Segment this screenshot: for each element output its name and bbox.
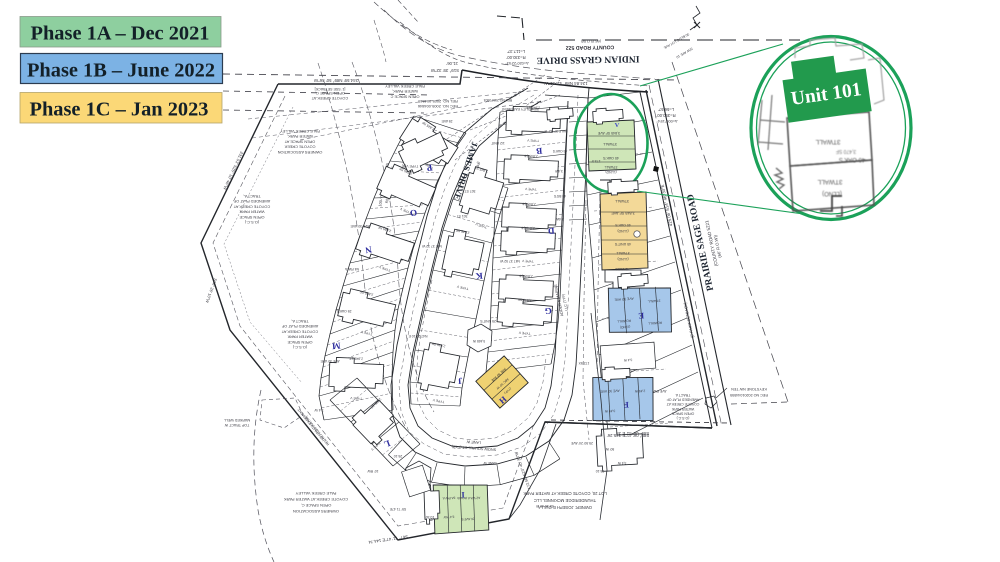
- svg-text:50’ UTILITY EASEMENT: 50’ UTILITY EASEMENT: [501, 107, 539, 111]
- svg-text:10’ RW: 10’ RW: [367, 469, 379, 473]
- svg-text:(O.S.C.): (O.S.C.): [244, 220, 259, 225]
- svg-text:V: V: [615, 122, 620, 129]
- svg-text:WATER PARK,: WATER PARK,: [392, 89, 418, 94]
- svg-text:25.10: 25.10: [394, 454, 403, 458]
- svg-text:INDIAN GRASS DRIVE: INDIAN GRASS DRIVE: [537, 53, 640, 66]
- svg-text:TRACT A,: TRACT A,: [291, 319, 308, 324]
- svg-text:AVE 30’ AVE: AVE 30’ AVE: [320, 359, 340, 363]
- svg-text:3,4 W: 3,4 W: [314, 408, 324, 412]
- svg-text:3,4W: 3,4W: [555, 217, 564, 221]
- svg-text:3,845 SF AVE: 3,845 SF AVE: [597, 131, 620, 135]
- svg-text:Phase 1C – Jan 2023: Phase 1C – Jan 2023: [30, 99, 209, 121]
- svg-text:Phase 1B – June 2022: Phase 1B – June 2022: [27, 60, 215, 82]
- svg-text:(LLNO): (LLNO): [605, 170, 616, 174]
- svg-text:2,49 W: 2,49 W: [634, 389, 646, 394]
- svg-text:R=350.00’: R=350.00’: [656, 113, 675, 118]
- svg-text:TYPE V: TYPE V: [526, 138, 539, 143]
- svg-text:40 OAK’S: 40 OAK’S: [603, 156, 619, 160]
- svg-text:OPEN SPACE C,: OPEN SPACE C,: [301, 503, 332, 508]
- svg-text:LOT 20, COYOTE CREEK AT WATER: LOT 20, COYOTE CREEK AT WATER PARK: [523, 491, 607, 496]
- svg-text:25 UNIT’S: 25 UNIT’S: [479, 319, 495, 323]
- svg-text:3,49 W: 3,49 W: [604, 409, 616, 414]
- svg-text:L=56.57’: L=56.57’: [658, 107, 674, 112]
- svg-text:COYOTE CREEK AT: COYOTE CREEK AT: [311, 96, 348, 101]
- svg-text:301 ST: 301 ST: [457, 214, 468, 218]
- svg-text:HALF 37’ 32″ E: HALF 37’ 32″ E: [544, 129, 568, 133]
- svg-text:3,470 SF: 3,470 SF: [836, 148, 856, 154]
- svg-text:3TWALL: 3TWALL: [603, 142, 617, 146]
- svg-text:40 WALL: 40 WALL: [615, 267, 629, 271]
- svg-text:E: E: [638, 311, 645, 321]
- svg-text:40 OAK’S: 40 OAK’S: [615, 223, 631, 227]
- svg-text:LANE W: LANE W: [483, 461, 497, 465]
- svg-text:(LLNO): (LLNO): [617, 257, 628, 261]
- svg-text:TRACT A,: TRACT A,: [243, 194, 260, 199]
- svg-text:WATER PARK: WATER PARK: [671, 407, 694, 411]
- svg-text:3TWALL: 3TWALL: [615, 199, 629, 203]
- svg-text:F: F: [623, 400, 629, 410]
- svg-text:3,4 W: 3,4 W: [617, 461, 626, 465]
- svg-text:REL NO. 2005-004845: REL NO. 2005-004845: [418, 99, 457, 104]
- svg-text:172.5X: 172.5X: [578, 361, 589, 365]
- svg-text:45 OAK’S: 45 OAK’S: [552, 149, 567, 153]
- svg-text:307 ST: 307 ST: [465, 189, 476, 193]
- svg-text:173.5’: 173.5’: [591, 159, 600, 163]
- svg-text:45 UNIT’S: 45 UNIT’S: [614, 242, 631, 246]
- svg-text:THUNDERIDGE MCKINNEL LLC: THUNDERIDGE MCKINNEL LLC: [534, 498, 596, 503]
- svg-text:OPEN SPACE C: OPEN SPACE C: [390, 94, 419, 99]
- svg-text:REC NO 20201044555: REC NO 20201044555: [730, 393, 768, 397]
- svg-text:25 AVE: 25 AVE: [441, 119, 453, 123]
- svg-text:AVE RW: AVE RW: [653, 389, 667, 393]
- svg-text:1/2 UNIT: 1/2 UNIT: [491, 141, 505, 145]
- svg-text:10.30: 10.30: [426, 515, 435, 519]
- svg-text:50’ W: 50’ W: [605, 447, 614, 451]
- svg-text:OWNERS ASSOCIATION: OWNERS ASSOCIATION: [293, 509, 339, 514]
- svg-text:PALE CREEK VALLEY: PALE CREEK VALLEY: [385, 84, 425, 89]
- svg-text:N67 37 32 W: N67 37 32 W: [421, 244, 442, 248]
- svg-text:OPEN SPACE: OPEN SPACE: [239, 215, 264, 220]
- svg-text:KEYSTONE NW TEN: KEYSTONE NW TEN: [731, 387, 767, 391]
- svg-text:TYPE V(B): TYPE V(B): [402, 164, 419, 168]
- svg-text:3TWALL: 3TWALL: [616, 251, 630, 255]
- svg-text:35.10: 35.10: [596, 469, 605, 473]
- svg-text:(66’ R.O.W): (66’ R.O.W): [580, 39, 601, 43]
- svg-text:(O.S.C.): (O.S.C.): [677, 416, 690, 420]
- svg-text:3TWALL: 3TWALL: [815, 138, 840, 145]
- svg-text:(LLNO): (LLNO): [620, 325, 631, 330]
- svg-text:(O.S.C.): (O.S.C.): [292, 345, 307, 350]
- svg-text:OWNERS ASSOCIATION: OWNERS ASSOCIATION: [277, 150, 322, 155]
- svg-text:COUNTY ROAD 522: COUNTY ROAD 522: [566, 44, 615, 51]
- svg-text:3,845 SF AVE: 3,845 SF AVE: [611, 211, 635, 215]
- svg-text:2,845 SF: 2,845 SF: [522, 202, 536, 207]
- svg-text:G: G: [544, 306, 552, 317]
- svg-text:3,4W: 3,4W: [554, 169, 563, 173]
- svg-text:3,4 W: 3,4 W: [623, 358, 633, 363]
- svg-text:N47 22 10 E: N47 22 10 E: [408, 334, 428, 338]
- svg-text:COYOTE CREEK AT: COYOTE CREEK AT: [233, 204, 270, 209]
- svg-text:2,845 SF: 2,845 SF: [524, 154, 538, 159]
- svg-text:R=330.00’: R=330.00’: [506, 55, 525, 60]
- svg-text:45 BS’S: 45 BS’S: [553, 194, 566, 198]
- svg-text:3A RW A: 3A RW A: [442, 496, 456, 500]
- svg-text:S89° 06′ 41″E 345.26’: S89° 06′ 41″E 345.26’: [607, 433, 650, 438]
- svg-text:OPEN SPACE: OPEN SPACE: [287, 340, 312, 345]
- svg-text:A2 WA A: A2 WA A: [467, 496, 480, 500]
- svg-text:REL NO 20170503: REL NO 20170503: [484, 98, 513, 102]
- svg-text:AMENDED PLAT OF: AMENDED PLAT OF: [667, 398, 700, 402]
- svg-text:124.84 N89° 42′ 52″W: 124.84 N89° 42′ 52″W: [544, 81, 588, 86]
- svg-text:WATER PARK: WATER PARK: [287, 335, 312, 340]
- svg-text:OPEN SPACE C,: OPEN SPACE C,: [315, 91, 345, 96]
- svg-text:OPEN SPACE: OPEN SPACE: [671, 411, 694, 415]
- svg-text:40 OAK’S: 40 OAK’S: [839, 156, 865, 162]
- svg-text:L=117.37’: L=117.37’: [507, 49, 525, 54]
- svg-text:S19° 35′ 32″W: S19° 35′ 32″W: [430, 68, 459, 73]
- svg-text:COYOTE CREEK: COYOTE CREEK: [284, 145, 315, 150]
- svg-text:21.06’: 21.06’: [446, 61, 457, 66]
- svg-text:5,465 W: 5,465 W: [472, 339, 485, 343]
- svg-text:OPEN SPACE AT: OPEN SPACE AT: [284, 139, 315, 144]
- svg-text:2,845 SF: 2,845 SF: [519, 274, 533, 279]
- svg-text:AMENDED PLAT OF: AMENDED PLAT OF: [233, 199, 270, 204]
- svg-text:[1’ SSE SETBACK]: [1’ SSE SETBACK]: [315, 87, 346, 91]
- svg-text:AMENDED PLAT OF: AMENDED PLAT OF: [281, 324, 318, 329]
- svg-text:TYPE V: TYPE V: [521, 259, 534, 264]
- svg-text:25.50’ 20’ AVE: 25.50’ 20’ AVE: [570, 441, 592, 445]
- svg-text:244.59’ N89° 50′ 46″W: 244.59’ N89° 50′ 46″W: [313, 78, 358, 83]
- svg-text:WATER PARK,: WATER PARK,: [287, 134, 313, 139]
- svg-text:PALE CREEK VALLEY: PALE CREEK VALLEY: [295, 491, 336, 496]
- svg-text:K: K: [475, 271, 483, 282]
- svg-text:S5’ 71 47E: S5’ 71 47E: [389, 507, 406, 511]
- svg-text:COYOTE CREEK AT: COYOTE CREEK AT: [666, 402, 700, 406]
- svg-text:3TWALL: 3TWALL: [817, 178, 842, 185]
- svg-text:3,4’ AW: 3,4’ AW: [444, 515, 455, 519]
- svg-text:Δ=020°22′53″: Δ=020°22′53″: [505, 61, 529, 65]
- svg-text:N4 RW A: N4 RW A: [344, 267, 359, 271]
- svg-text:TYPE V: TYPE V: [349, 396, 362, 401]
- svg-text:WATER PARK: WATER PARK: [239, 210, 264, 215]
- svg-text:TOP TRACT W: TOP TRACT W: [224, 423, 249, 427]
- svg-text:N47 37 52 W: N47 37 52 W: [499, 259, 520, 263]
- svg-text:M: M: [331, 341, 341, 352]
- svg-text:26 AVE’S: 26 AVE’S: [461, 517, 474, 521]
- svg-text:(LLNO): (LLNO): [617, 229, 628, 233]
- svg-text:REC NO. 2005-004846: REC NO. 2005-004846: [418, 104, 458, 109]
- svg-text:2,845 SF: 2,845 SF: [521, 226, 535, 231]
- svg-text:PALE CREEK VALLEY: PALE CREEK VALLEY: [280, 129, 320, 134]
- svg-text:B: B: [536, 146, 543, 156]
- svg-text:2,845 SF: 2,845 SF: [349, 356, 363, 361]
- svg-text:TRACT A: TRACT A: [675, 393, 690, 397]
- svg-text:COYOTE CREEK AT WATER PARK: COYOTE CREEK AT WATER PARK: [284, 497, 349, 502]
- svg-text:AVE 30’ AVE: AVE 30’ AVE: [350, 224, 370, 228]
- svg-text:TYPE V: TYPE V: [524, 187, 537, 192]
- svg-text:Δ=009°15′4″: Δ=009°15′4″: [656, 119, 678, 123]
- svg-text:25 OAK’S: 25 OAK’S: [336, 309, 352, 313]
- svg-text:3TWALL: 3TWALL: [604, 165, 617, 169]
- svg-text:OWNER: JOSEPH E GULLA: OWNER: JOSEPH E GULLA: [538, 505, 592, 510]
- svg-text:COYOTE CREEK AT: COYOTE CREEK AT: [281, 329, 318, 334]
- svg-text:MARKED WELL: MARKED WELL: [224, 418, 250, 422]
- svg-text:Phase 1A – Dec 2021: Phase 1A – Dec 2021: [31, 23, 210, 45]
